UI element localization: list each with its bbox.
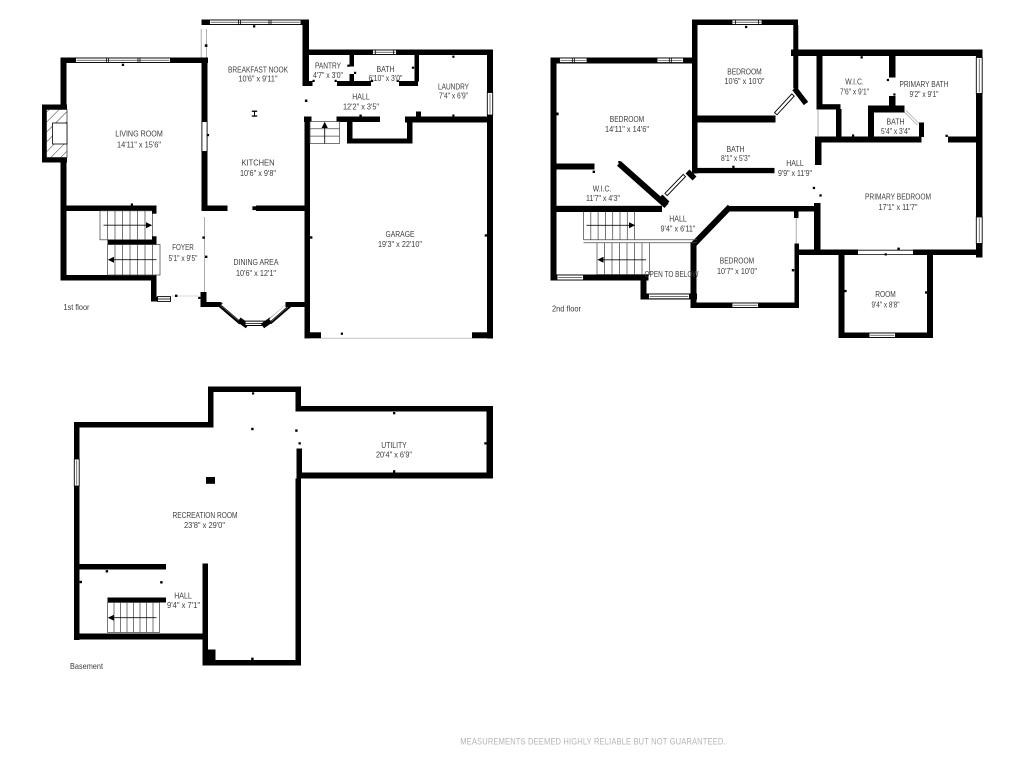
svg-text:MEASUREMENTS DEEMED HIGHLY REL: MEASUREMENTS DEEMED HIGHLY RELIABLE BUT … bbox=[460, 737, 726, 747]
svg-text:9'4" x 8'8": 9'4" x 8'8" bbox=[872, 299, 900, 309]
svg-text:PRIMARY BEDROOM: PRIMARY BEDROOM bbox=[865, 192, 931, 202]
svg-text:HALL: HALL bbox=[352, 92, 370, 102]
svg-text:PRIMARY BATH: PRIMARY BATH bbox=[900, 79, 949, 89]
svg-text:OPEN TO BELOW: OPEN TO BELOW bbox=[645, 269, 699, 279]
svg-text:9'4" x 6'11": 9'4" x 6'11" bbox=[661, 224, 696, 234]
svg-text:BEDROOM: BEDROOM bbox=[720, 256, 755, 266]
svg-text:8'1" x 5'3": 8'1" x 5'3" bbox=[721, 153, 750, 163]
svg-text:7'6" x 9'1": 7'6" x 9'1" bbox=[840, 86, 869, 96]
svg-text:10'6" x 10'0": 10'6" x 10'0" bbox=[725, 76, 765, 86]
svg-text:9'4" x 7'1": 9'4" x 7'1" bbox=[167, 600, 200, 610]
svg-text:10'6" x 12'1": 10'6" x 12'1" bbox=[236, 268, 276, 278]
svg-text:BEDROOM: BEDROOM bbox=[610, 114, 645, 124]
svg-text:5'1" x 9'5": 5'1" x 9'5" bbox=[169, 253, 198, 263]
svg-text:14'11" x 14'6": 14'11" x 14'6" bbox=[605, 124, 649, 134]
svg-text:RECREATION ROOM: RECREATION ROOM bbox=[173, 510, 238, 520]
svg-text:20'4" x 6'9": 20'4" x 6'9" bbox=[376, 450, 412, 460]
svg-text:Basement: Basement bbox=[70, 661, 104, 671]
svg-text:10'6" x 9'11": 10'6" x 9'11" bbox=[239, 73, 278, 83]
svg-text:GARAGE: GARAGE bbox=[386, 229, 415, 239]
svg-text:KITCHEN: KITCHEN bbox=[242, 158, 275, 168]
svg-text:UTILITY: UTILITY bbox=[381, 440, 407, 450]
svg-text:9'2" x 9'1": 9'2" x 9'1" bbox=[910, 89, 939, 99]
svg-text:2nd floor: 2nd floor bbox=[552, 303, 581, 313]
svg-text:HALL: HALL bbox=[786, 158, 804, 168]
svg-text:9'9" x 11'9": 9'9" x 11'9" bbox=[778, 168, 812, 178]
svg-text:19'3" x 22'10": 19'3" x 22'10" bbox=[378, 239, 422, 249]
svg-text:ROOM: ROOM bbox=[875, 289, 896, 299]
svg-text:W.I.C.: W.I.C. bbox=[845, 76, 864, 86]
svg-text:12'2" x 3'5": 12'2" x 3'5" bbox=[343, 101, 379, 111]
svg-text:4'7" x 3'0": 4'7" x 3'0" bbox=[313, 70, 343, 80]
svg-text:11'7" x 4'3": 11'7" x 4'3" bbox=[586, 193, 620, 203]
svg-text:14'11" x 15'6": 14'11" x 15'6" bbox=[117, 139, 161, 149]
svg-text:10'6" x 9'8": 10'6" x 9'8" bbox=[240, 168, 276, 178]
svg-text:LIVING ROOM: LIVING ROOM bbox=[115, 129, 163, 139]
svg-text:BATH: BATH bbox=[887, 116, 905, 126]
svg-text:HALL: HALL bbox=[669, 214, 687, 224]
svg-text:1st floor: 1st floor bbox=[64, 302, 90, 312]
svg-text:23'8" x 29'0": 23'8" x 29'0" bbox=[184, 520, 225, 530]
svg-text:10'7" x 10'0": 10'7" x 10'0" bbox=[717, 266, 757, 276]
svg-text:DINING AREA: DINING AREA bbox=[234, 257, 279, 267]
svg-text:FOYER: FOYER bbox=[172, 242, 194, 252]
svg-text:17'1" x 11'7": 17'1" x 11'7" bbox=[879, 202, 918, 212]
svg-text:BEDROOM: BEDROOM bbox=[727, 66, 762, 76]
svg-text:6'10" x 3'0": 6'10" x 3'0" bbox=[369, 73, 403, 83]
svg-text:7'4" x 6'9": 7'4" x 6'9" bbox=[439, 90, 468, 100]
svg-text:5'4" x 3'4": 5'4" x 3'4" bbox=[881, 126, 910, 136]
